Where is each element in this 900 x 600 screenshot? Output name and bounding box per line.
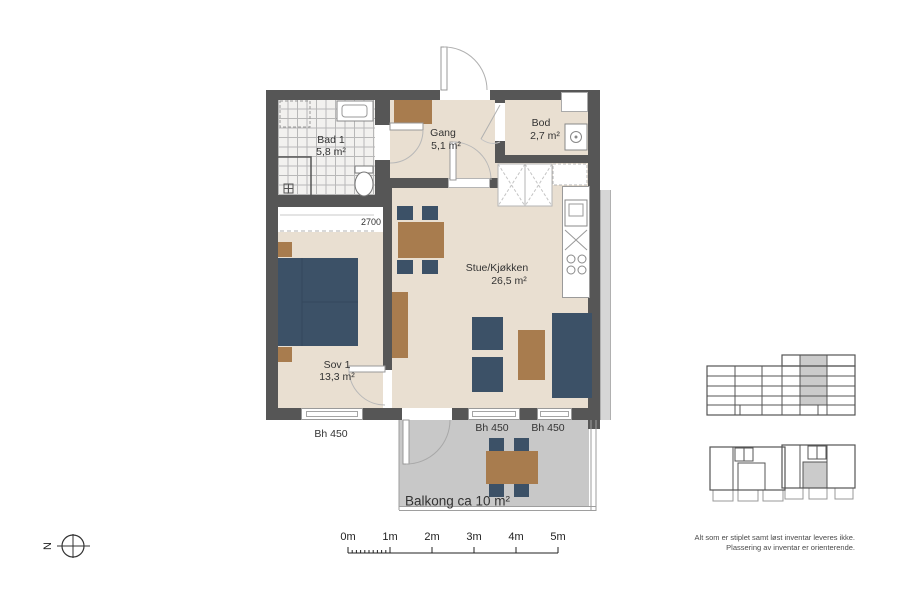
living-door-opening — [448, 178, 490, 188]
overview-left-unit-line — [738, 463, 765, 490]
room-label-sov1-area: 13,3 m² — [319, 371, 355, 383]
armchair-2 — [472, 357, 503, 392]
scale-bar-major-ticks — [348, 547, 558, 553]
storage-door-opening — [495, 103, 505, 141]
room-label-stue-area: 26,5 m² — [491, 275, 527, 287]
window-height-label-2: Bh 450 — [475, 422, 508, 434]
bathroom-door-opening — [375, 125, 390, 160]
overview-highlighted-unit — [803, 462, 827, 488]
room-label-bod-area: 2,7 m² — [530, 130, 560, 142]
elevation-floor-lines — [707, 376, 855, 405]
nightstand-bottom — [278, 347, 292, 362]
building-floor-overview-diagram — [705, 440, 857, 502]
adjacent-balcony-strip — [600, 190, 611, 420]
entrance-door-leaf — [441, 47, 447, 90]
kitchen-counter — [562, 186, 590, 298]
building-elevation-diagram — [705, 352, 857, 418]
dining-chair-1 — [397, 206, 413, 220]
balcony-chair-2 — [514, 438, 529, 451]
overview-balcony-6 — [835, 488, 853, 499]
coffee-table — [518, 330, 545, 380]
balcony-chair-4 — [514, 484, 529, 497]
room-label-gang-area: 5,1 m² — [431, 140, 461, 152]
elevation-outline — [707, 366, 855, 415]
overview-balcony-2 — [738, 490, 758, 501]
scale-tick-5m: 5m — [550, 531, 565, 543]
wardrobe-dimension-label: 2700 — [361, 217, 381, 227]
wall-bath-bedroom — [266, 195, 390, 207]
dining-chair-2 — [422, 206, 438, 220]
wall-hall-living-left — [390, 178, 448, 188]
compass-cross — [57, 534, 90, 558]
scale-bar — [340, 545, 568, 557]
nightstand-top — [278, 242, 292, 257]
bedroom-window — [301, 408, 363, 420]
tv-cabinet — [392, 292, 408, 358]
scale-tick-3m: 3m — [466, 531, 481, 543]
north-label: N — [42, 542, 54, 550]
wall-corner-ext — [588, 420, 600, 429]
hallway-cabinet — [394, 100, 432, 124]
armchair-1 — [472, 317, 503, 350]
overview-balcony-5 — [809, 488, 827, 499]
elevation-highlighted-unit — [800, 355, 827, 405]
sofa — [552, 313, 592, 398]
room-label-bad1-name: Bad 1 — [317, 134, 344, 146]
dining-chair-3 — [397, 260, 413, 274]
entrance-door-arc — [444, 47, 487, 90]
balcony-rail-right — [591, 420, 596, 511]
wall-storage-living — [495, 155, 600, 163]
wall-bottom-seg4 — [520, 408, 537, 420]
scale-tick-0m: 0m — [340, 531, 355, 543]
window-height-label-3: Bh 450 — [531, 422, 564, 434]
balcony-chair-1 — [489, 438, 504, 451]
wall-bottom-seg1 — [266, 408, 301, 420]
scale-tick-4m: 4m — [508, 531, 523, 543]
elevation-entry-marks — [740, 405, 818, 415]
balcony-label: Balkong ca 10 m² — [405, 494, 510, 509]
entrance-door-opening — [440, 90, 490, 100]
overview-balcony-3 — [763, 490, 783, 501]
room-label-gang-name: Gang — [430, 127, 456, 139]
living-window-2 — [537, 408, 572, 420]
balcony-table — [486, 451, 538, 484]
wall-left — [266, 90, 278, 420]
overview-balcony-1 — [713, 490, 733, 501]
kitchen-zone-floor — [495, 163, 588, 188]
wall-bottom-seg5 — [572, 408, 600, 420]
bed — [278, 258, 358, 346]
room-label-bod-name: Bod — [532, 117, 551, 129]
dining-table — [398, 222, 444, 258]
wall-bottom-seg3 — [452, 408, 468, 420]
wall-bedroom-living — [383, 188, 392, 370]
disclaimer-line-1: Alt som er stiplet samt løst inventar le… — [695, 533, 855, 543]
disclaimer-line-2: Plassering av inventar er orienterende. — [695, 543, 855, 553]
room-label-bad1-area: 5,8 m² — [316, 146, 346, 158]
window-height-label-1: Bh 450 — [314, 428, 347, 440]
overview-left-wing — [710, 447, 785, 490]
scale-tick-1m: 1m — [382, 531, 397, 543]
overview-balcony-4 — [785, 488, 803, 499]
floor-plan-canvas: Bad 1 5,8 m² Gang 5,1 m² Bod 2,7 m² Stue… — [0, 0, 900, 600]
scale-tick-2m: 2m — [424, 531, 439, 543]
living-window-1 — [468, 408, 520, 420]
room-label-sov1-name: Sov 1 — [324, 359, 351, 371]
wall-hall-living-right — [490, 178, 505, 188]
storage-wall-niche — [561, 92, 588, 112]
room-label-stue-name: Stue/Kjøkken — [466, 262, 528, 274]
disclaimer-notes: Alt som er stiplet samt løst inventar le… — [695, 533, 855, 553]
wall-top — [266, 90, 600, 100]
compass-icon — [55, 532, 95, 562]
wall-bottom-seg2 — [363, 408, 402, 420]
dining-chair-4 — [422, 260, 438, 274]
